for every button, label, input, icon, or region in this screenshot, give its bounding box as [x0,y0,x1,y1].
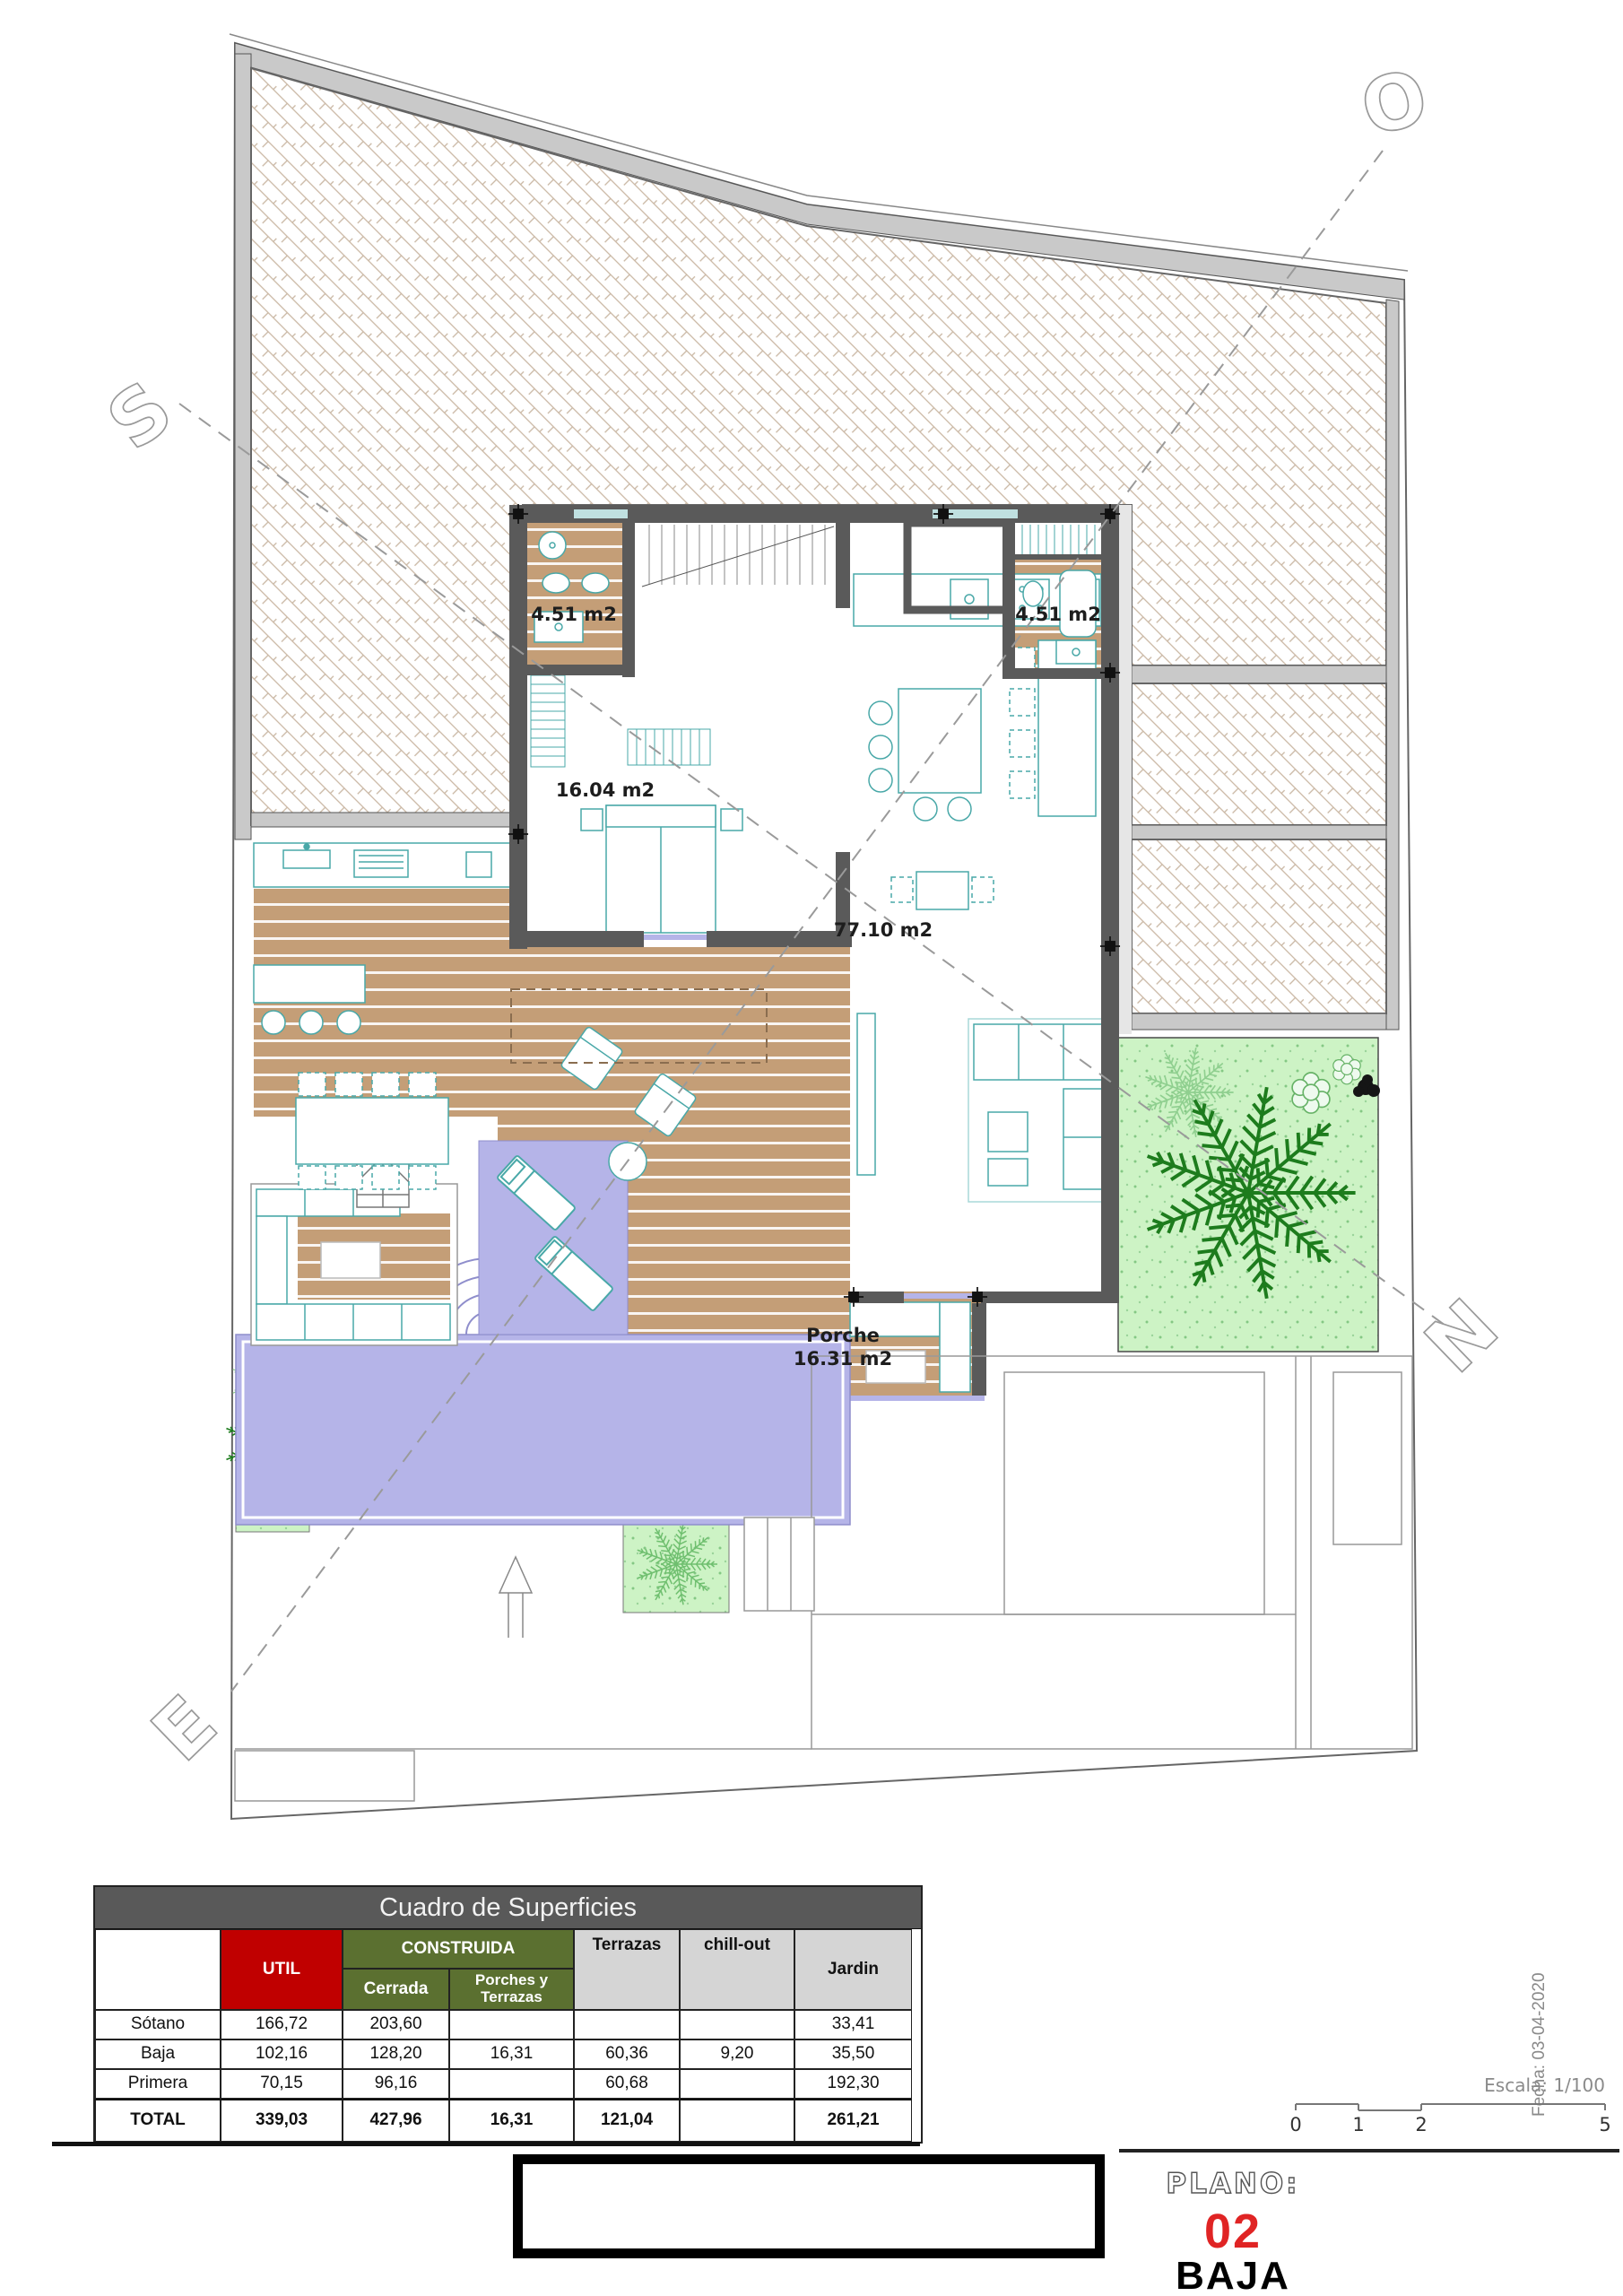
compass-east: E [135,1679,233,1778]
table-cell: 35,50 [794,2039,912,2069]
label-bedroom: 16.04 m2 [556,779,655,801]
scale-bar: Escala: 1/100 0 1 2 5 [1246,2070,1623,2142]
label-living: 77.10 m2 [834,919,933,941]
table-cell: 96,16 [343,2069,449,2099]
header-jardin: Jardin [794,1929,912,2010]
table-cell: 203,60 [343,2010,449,2039]
plano-number: 02 [1148,2207,1318,2256]
plano-label: PLANO: [1166,2168,1299,2200]
label-bath-right: 4.51 m2 [1015,604,1101,625]
table-cell [449,2010,574,2039]
table-cell [680,2069,794,2099]
scale-tick: 5 [1599,2114,1610,2135]
table-cell: 166,72 [221,2010,343,2039]
row-label-total: TOTAL [95,2099,221,2142]
header-porches: Porches y Terrazas [449,1969,574,2010]
table-cell [680,2099,794,2142]
row-label: Primera [95,2069,221,2099]
table-cell: 339,03 [221,2099,343,2142]
tanning-deck [479,1141,628,1335]
table-underline [52,2142,920,2146]
table-corner-cell [95,1929,221,2010]
titleblock-divider [1119,2149,1619,2152]
table-cell [680,2010,794,2039]
areas-table: Cuadro de Superficies UTIL CONSTRUIDA Ce… [93,1885,923,2144]
garden-right [1118,1038,1380,1352]
plano-name: BAJA [1148,2256,1318,2296]
scale-tick: 1 [1352,2114,1364,2135]
scale-label: Escala: 1/100 [1484,2074,1605,2096]
compass-north: N [1409,1283,1515,1389]
header-chillout: chill-out [680,1929,794,2010]
table-cell: 16,31 [449,2039,574,2069]
floor-plan: S O N E 4.51 m2 4.51 m2 16.04 m2 77.10 m… [0,0,1623,1865]
row-label: Sótano [95,2010,221,2039]
plano-block: PLANO: 02 BAJA [1148,2165,1318,2296]
table-cell: 9,20 [680,2039,794,2069]
table-cell: 60,36 [574,2039,680,2069]
label-bath-left: 4.51 m2 [531,604,617,625]
plano-outline-text: PLANO: [1148,2165,1318,2203]
label-porch-name: Porche [806,1325,880,1346]
scale-tick: 2 [1415,2114,1427,2135]
compass-west: O [1352,52,1436,153]
compass-south: S [91,364,188,466]
header-construida: CONSTRUIDA [343,1929,574,1969]
title-box [513,2154,1105,2258]
scale-tick: 0 [1289,2114,1301,2135]
table-cell [574,2010,680,2039]
table-cell: 102,16 [221,2039,343,2069]
table-cell: 16,31 [449,2099,574,2142]
table-cell: 192,30 [794,2069,912,2099]
table-cell: 427,96 [343,2099,449,2142]
table-cell: 70,15 [221,2069,343,2099]
table-cell: 121,04 [574,2099,680,2142]
header-util: UTIL [221,1929,343,2010]
header-terrazas: Terrazas [574,1929,680,2010]
table-title: Cuadro de Superficies [95,1887,921,1929]
header-cerrada: Cerrada [343,1969,449,2010]
table-cell: 60,68 [574,2069,680,2099]
label-porch-area: 16.31 m2 [794,1348,892,1370]
table-cell: 261,21 [794,2099,912,2142]
table-cell [449,2069,574,2099]
garden-small [623,1518,729,1613]
outdoor-dining [296,1073,448,1189]
drawing-sheet: S O N E 4.51 m2 4.51 m2 16.04 m2 77.10 m… [0,0,1623,2296]
table-cell: 33,41 [794,2010,912,2039]
row-label: Baja [95,2039,221,2069]
table-cell: 128,20 [343,2039,449,2069]
